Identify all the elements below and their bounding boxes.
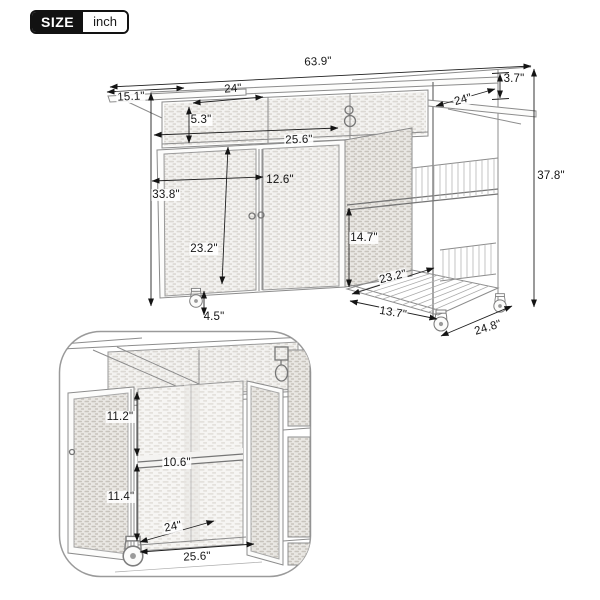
- dim-shelf-spacing: 14.7": [349, 232, 378, 244]
- size-badge-label: SIZE: [32, 12, 83, 32]
- caster-wheel-icon: [123, 536, 143, 565]
- dim-door-height: 23.2": [189, 243, 218, 255]
- dim-middle-shelf-depth: 10.6": [162, 457, 191, 469]
- dimension-diagram-page: SIZE inch 63.9" 15.1" 24" 5.3" 25.6" 12.…: [0, 0, 600, 600]
- caster-wheel-icon: [190, 288, 506, 331]
- dim-top-shelf-height: 5.3": [190, 114, 213, 126]
- dim-caster-height: 4.5": [204, 311, 225, 323]
- dim-interior-width: 25.6": [182, 550, 212, 564]
- inset-drawing: [60, 332, 311, 577]
- dim-cabinet-width: 25.6": [284, 133, 314, 146]
- dim-counter-height: 33.8": [151, 189, 180, 201]
- dim-leaf-depth: 15.1": [116, 90, 146, 104]
- dim-cabinet-depth: 12.6": [266, 174, 293, 186]
- dim-counter-thickness: 3.7": [504, 73, 525, 85]
- dim-lower-compartment-height: 11.4": [107, 491, 136, 503]
- dim-total-width: 63.9": [304, 55, 332, 68]
- line-art-canvas: [0, 0, 600, 600]
- dim-overall-height: 37.8": [537, 170, 564, 182]
- size-badge-unit: inch: [83, 12, 127, 32]
- size-unit-badge: SIZE inch: [30, 10, 129, 34]
- dim-upper-compartment-height: 11.2": [106, 411, 135, 423]
- dim-top-shelf-width: 24": [224, 82, 242, 95]
